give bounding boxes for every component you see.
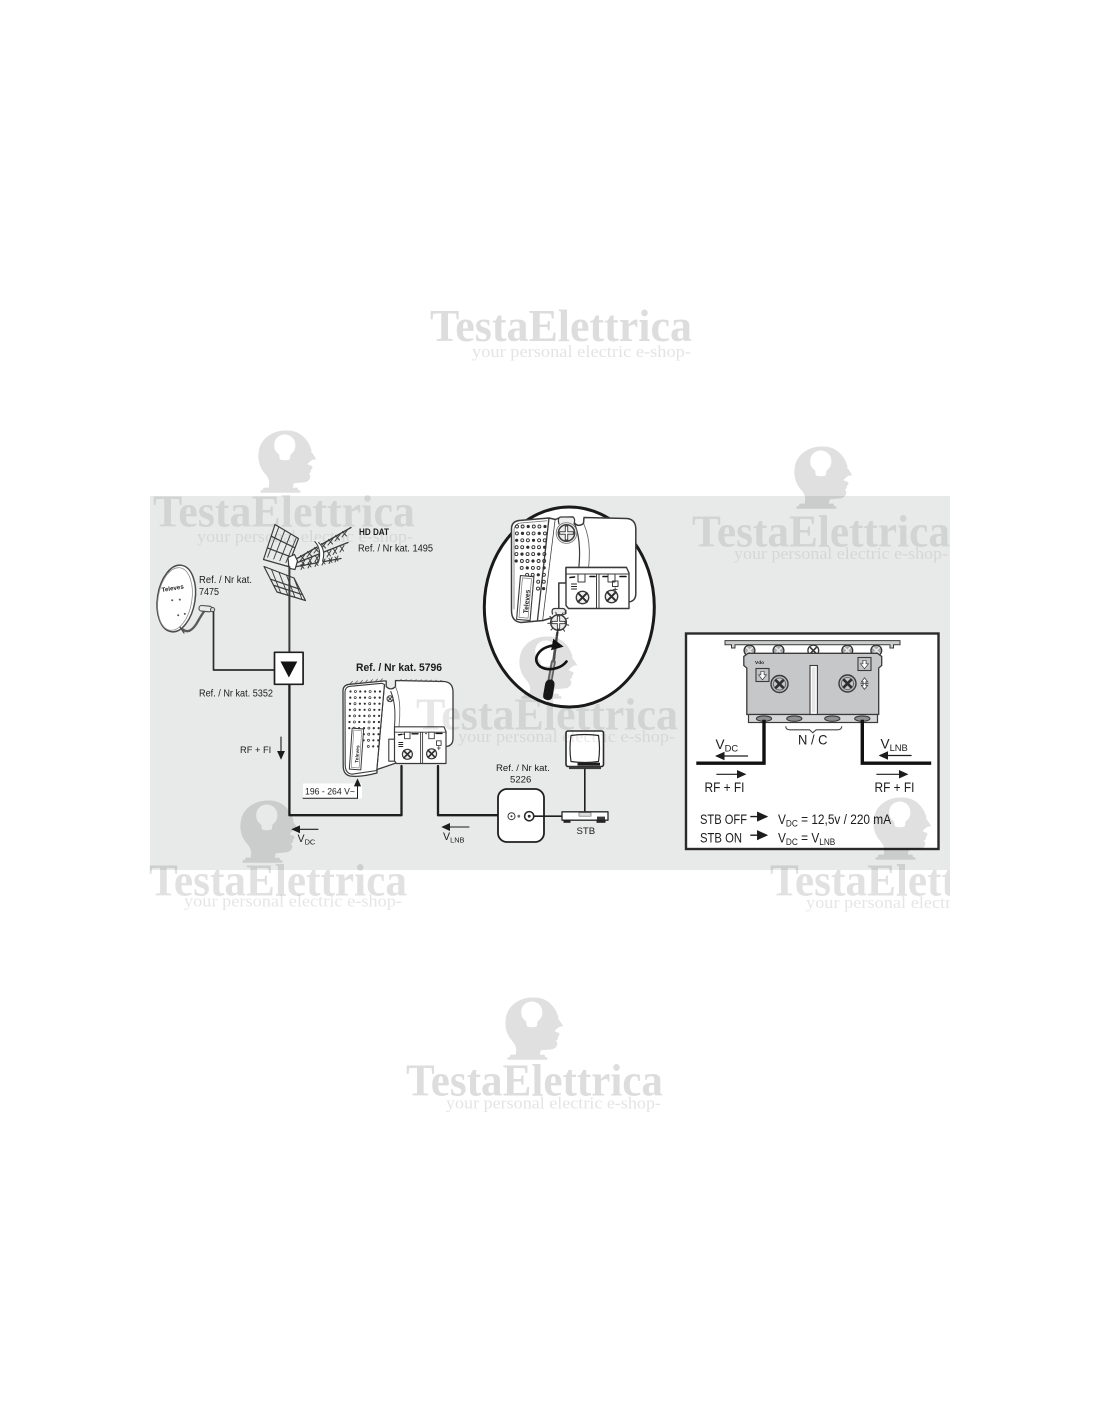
svg-text:your personal electric e-shop-: your personal electric e-shop-: [458, 727, 675, 746]
svg-text:N / C: N / C: [798, 733, 828, 748]
svg-text:STB ON: STB ON: [700, 831, 742, 846]
svg-text:your personal electric e-shop-: your personal electric e-shop-: [472, 342, 691, 361]
svg-text:your personal electric e-shop-: your personal electric e-shop-: [184, 892, 402, 911]
svg-text:5226: 5226: [510, 775, 531, 786]
svg-text:your personal electric e-shop-: your personal electric e-shop-: [734, 544, 948, 563]
svg-text:Ref. / Nr kat.: Ref. / Nr kat.: [496, 763, 550, 774]
svg-text:RF + FI: RF + FI: [240, 745, 271, 755]
svg-text:Televes: Televes: [354, 745, 361, 763]
svg-text:your personal electric e-shop-: your personal electric e-shop-: [197, 527, 413, 546]
svg-text:Ref. / Nr kat.: Ref. / Nr kat.: [199, 575, 252, 586]
svg-text:STB: STB: [577, 826, 596, 837]
svg-text:196 - 264 V~: 196 - 264 V~: [305, 787, 356, 797]
svg-text:Ref. / Nr kat. 5796: Ref. / Nr kat. 5796: [356, 662, 442, 674]
svg-text:STB OFF: STB OFF: [700, 812, 747, 827]
svg-text:Ref. / Nr kat. 5352: Ref. / Nr kat. 5352: [199, 689, 273, 700]
svg-text:7475: 7475: [199, 587, 220, 598]
svg-text:RF + FI: RF + FI: [875, 780, 915, 795]
svg-text:Vdo: Vdo: [755, 660, 764, 666]
svg-text:RF + FI: RF + FI: [705, 780, 745, 795]
svg-text:your personal electric e-shop-: your personal electric e-shop-: [446, 1094, 661, 1113]
